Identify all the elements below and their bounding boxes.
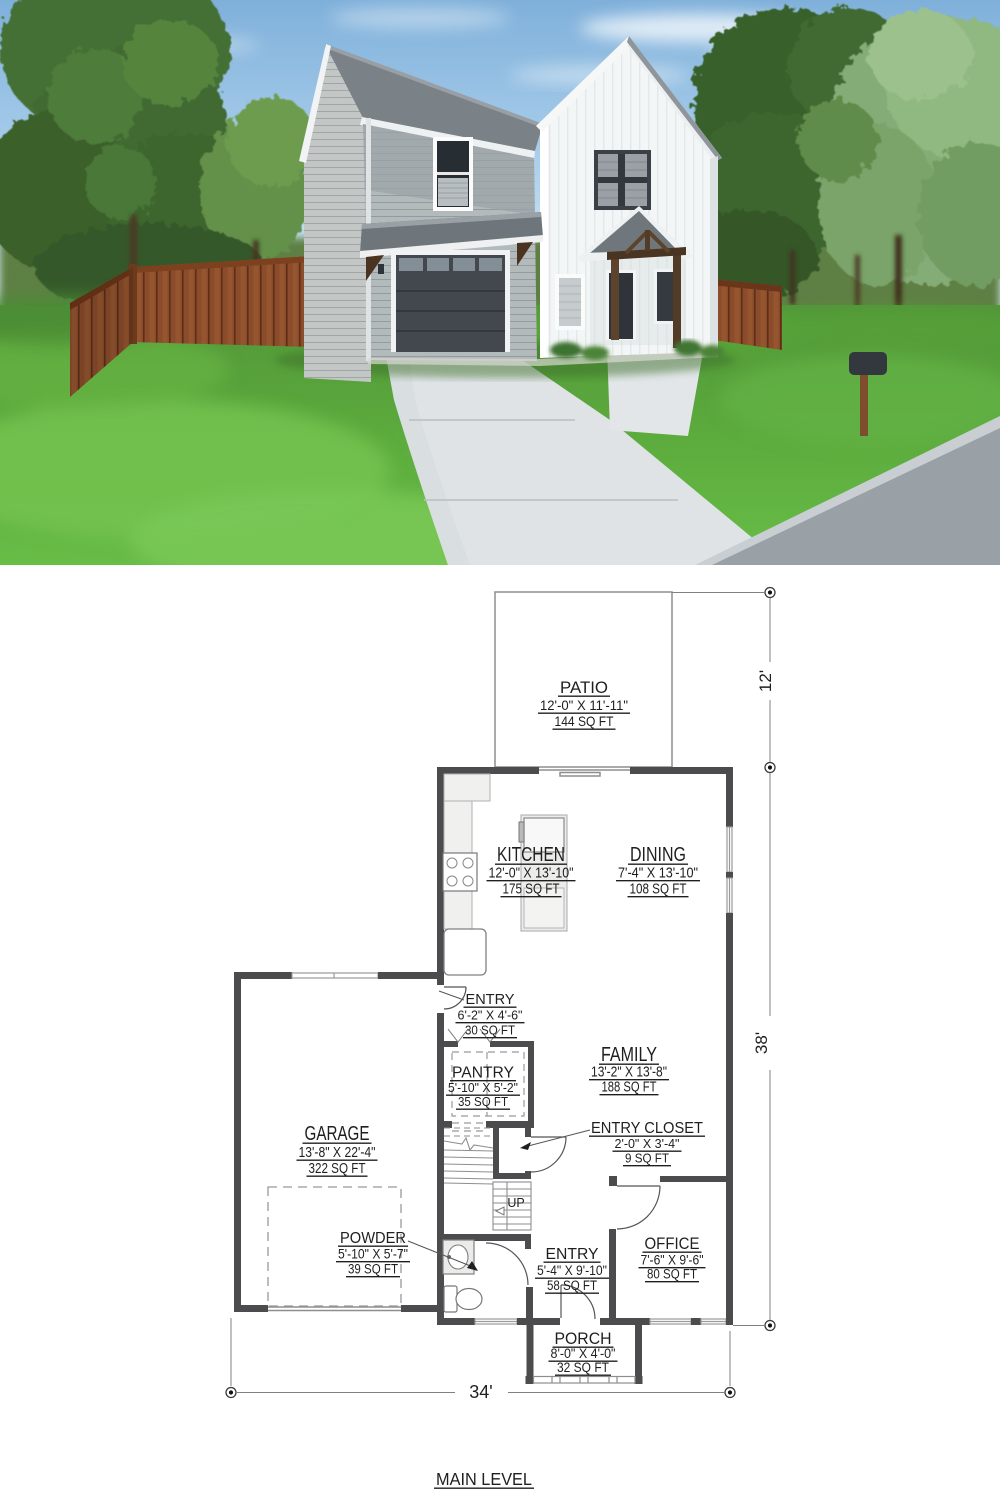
svg-text:34': 34' [469,1382,492,1402]
svg-text:188 SQ FT: 188 SQ FT [602,1079,657,1096]
svg-text:35 SQ FT: 35 SQ FT [458,1094,508,1109]
svg-text:ENTRY: ENTRY [466,991,515,1008]
svg-text:80 SQ FT: 80 SQ FT [647,1267,697,1282]
svg-text:MAIN LEVEL: MAIN LEVEL [436,1469,532,1489]
svg-text:12': 12' [756,670,775,692]
svg-text:144 SQ FT: 144 SQ FT [555,713,614,729]
svg-text:32 SQ FT: 32 SQ FT [557,1360,609,1375]
svg-text:GARAGE: GARAGE [305,1123,370,1145]
svg-text:39 SQ FT: 39 SQ FT [348,1262,398,1277]
svg-text:8'-0" X 4'-0": 8'-0" X 4'-0" [551,1346,616,1361]
svg-text:108 SQ FT: 108 SQ FT [630,881,687,898]
svg-text:ENTRY: ENTRY [546,1246,599,1263]
svg-text:5'-10" X 5'-2": 5'-10" X 5'-2" [448,1080,518,1095]
svg-text:6'-2" X 4'-6": 6'-2" X 4'-6" [458,1008,523,1023]
svg-text:175 SQ FT: 175 SQ FT [503,881,560,898]
svg-text:POWDER: POWDER [340,1230,406,1247]
svg-text:7'-6" X 9'-6": 7'-6" X 9'-6" [641,1253,704,1268]
svg-text:13'-8" X 22'-4": 13'-8" X 22'-4" [299,1144,376,1161]
svg-text:DINING: DINING [630,844,686,866]
svg-text:UP: UP [507,1196,524,1210]
svg-text:12'-0" X 13'-10": 12'-0" X 13'-10" [489,865,574,882]
svg-text:58 SQ FT: 58 SQ FT [547,1278,597,1293]
svg-text:7'-4" X 13'-10": 7'-4" X 13'-10" [618,865,698,882]
svg-text:KITCHEN: KITCHEN [497,844,565,866]
svg-text:PANTRY: PANTRY [452,1065,514,1082]
svg-text:322 SQ FT: 322 SQ FT [309,1160,366,1177]
svg-text:5'-4" X 9'-10": 5'-4" X 9'-10" [537,1263,607,1278]
svg-text:OFFICE: OFFICE [645,1234,700,1253]
svg-text:5'-10" X 5'-7": 5'-10" X 5'-7" [338,1247,408,1262]
svg-text:12'-0" X 11'-11": 12'-0" X 11'-11" [540,697,628,713]
svg-text:PATIO: PATIO [560,678,608,697]
svg-text:ENTRY CLOSET: ENTRY CLOSET [591,1120,704,1137]
svg-text:9 SQ FT: 9 SQ FT [625,1151,669,1166]
svg-text:2'-0" X 3'-4": 2'-0" X 3'-4" [615,1136,680,1151]
svg-text:38': 38' [752,1032,771,1054]
svg-text:30 SQ FT: 30 SQ FT [465,1023,515,1038]
